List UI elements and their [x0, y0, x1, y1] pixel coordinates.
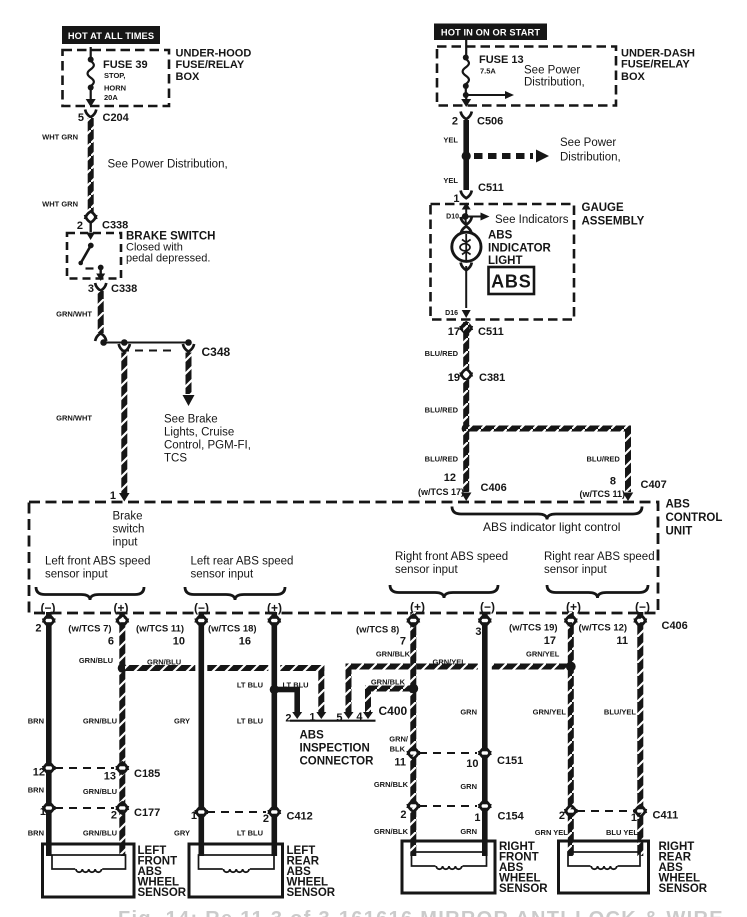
svg-text:11: 11 [616, 635, 628, 647]
svg-text:GRN YEL: GRN YEL [535, 828, 569, 837]
svg-text:See Power Distribution,: See Power Distribution, [108, 159, 228, 171]
svg-text:C406: C406 [662, 620, 688, 632]
svg-text:sensor input: sensor input [45, 569, 108, 581]
svg-text:(w/TCS 11): (w/TCS 11) [579, 489, 625, 499]
svg-text:CONTROL: CONTROL [666, 512, 723, 524]
svg-text:GRY: GRY [174, 829, 190, 838]
svg-text:C177: C177 [134, 807, 160, 819]
svg-text:C412: C412 [287, 810, 313, 822]
svg-text:2: 2 [77, 220, 83, 232]
svg-text:(−): (−) [635, 600, 650, 614]
svg-text:BLU/YEL: BLU/YEL [604, 708, 637, 717]
svg-text:11: 11 [394, 757, 406, 769]
svg-text:C338: C338 [111, 283, 137, 295]
svg-text:2: 2 [263, 813, 269, 825]
svg-text:(w/TCS 11): (w/TCS 11) [136, 623, 184, 634]
svg-text:Distribution,: Distribution, [524, 77, 585, 89]
svg-text:HORN: HORN [104, 84, 126, 93]
svg-text:Left rear ABS speed: Left rear ABS speed [191, 556, 294, 568]
svg-text:(w/TCS 8): (w/TCS 8) [356, 624, 399, 635]
svg-text:TCS: TCS [164, 453, 187, 465]
svg-text:Right front ABS speed: Right front ABS speed [395, 551, 508, 563]
svg-text:C406: C406 [481, 482, 507, 494]
svg-text:3: 3 [475, 626, 481, 638]
svg-text:BLU/RED: BLU/RED [587, 455, 621, 464]
svg-text:pedal depressed.: pedal depressed. [126, 253, 210, 265]
svg-text:(w/TCS 18): (w/TCS 18) [208, 623, 257, 634]
svg-text:6: 6 [108, 636, 114, 648]
svg-text:LT BLU: LT BLU [237, 681, 263, 690]
svg-text:FUSE/RELAY: FUSE/RELAY [176, 59, 245, 71]
svg-text:switch: switch [113, 524, 145, 536]
svg-text:C400: C400 [379, 704, 408, 718]
svg-text:GRN/BLU: GRN/BLU [83, 829, 117, 838]
svg-text:2: 2 [285, 713, 291, 725]
svg-text:GRN/WHT: GRN/WHT [56, 310, 92, 319]
svg-text:C204: C204 [103, 112, 130, 124]
svg-text:YEL: YEL [443, 176, 458, 185]
svg-text:WHT GRN: WHT GRN [42, 200, 78, 209]
svg-text:1: 1 [40, 806, 46, 818]
svg-text:ABS: ABS [491, 272, 531, 292]
svg-text:input: input [113, 537, 139, 549]
svg-text:ABS: ABS [300, 730, 325, 742]
svg-text:GRN/WHT: GRN/WHT [56, 414, 92, 423]
svg-text:GRN/: GRN/ [389, 734, 409, 743]
svg-text:BOX: BOX [621, 71, 646, 83]
svg-text:19: 19 [448, 372, 460, 384]
svg-text:16: 16 [239, 636, 251, 648]
svg-text:1: 1 [110, 490, 116, 502]
svg-text:GRN/YEL: GRN/YEL [433, 657, 467, 666]
svg-text:UNIT: UNIT [666, 525, 693, 537]
svg-text:20A: 20A [104, 93, 118, 102]
svg-text:WHT GRN: WHT GRN [42, 133, 78, 142]
svg-text:7: 7 [400, 635, 406, 647]
svg-text:GRN/BLK: GRN/BLK [374, 780, 409, 789]
svg-text:SENSOR: SENSOR [138, 887, 187, 899]
svg-text:YEL: YEL [443, 136, 458, 145]
svg-text:D10: D10 [446, 213, 459, 220]
svg-text:BOX: BOX [176, 71, 201, 83]
svg-text:Brake: Brake [113, 511, 143, 523]
svg-text:C511: C511 [478, 182, 504, 194]
svg-text:10: 10 [173, 636, 185, 648]
svg-text:GAUGE: GAUGE [582, 202, 625, 214]
svg-text:12: 12 [33, 766, 45, 778]
svg-text:ASSEMBLY: ASSEMBLY [582, 216, 645, 228]
svg-text:Fig. 14: Re 11 3 of 3-161616: Fig. 14: Re 11 3 of 3-161616 MIRROR ANTI… [118, 908, 724, 917]
svg-text:17: 17 [544, 635, 556, 647]
svg-text:See Power: See Power [560, 137, 616, 149]
svg-text:(w/TCS 7): (w/TCS 7) [68, 623, 111, 634]
svg-text:2: 2 [559, 810, 565, 822]
svg-text:BRN: BRN [28, 829, 44, 838]
svg-text:LT BLU: LT BLU [283, 681, 309, 690]
svg-text:BLU YEL: BLU YEL [606, 828, 638, 837]
svg-text:2: 2 [35, 622, 41, 634]
svg-text:ABS: ABS [666, 498, 691, 510]
svg-text:5: 5 [336, 712, 342, 724]
svg-text:BLU/RED: BLU/RED [425, 455, 459, 464]
svg-text:INSPECTION: INSPECTION [300, 743, 370, 755]
svg-text:STOP,: STOP, [104, 71, 125, 80]
svg-text:LT BLU: LT BLU [237, 829, 263, 838]
svg-text:17: 17 [448, 326, 460, 338]
svg-text:GRN/BLU: GRN/BLU [83, 787, 117, 796]
svg-text:Distribution,: Distribution, [560, 151, 621, 163]
svg-text:BLK: BLK [390, 745, 406, 754]
svg-text:sensor input: sensor input [395, 564, 458, 576]
svg-text:GRN/YEL: GRN/YEL [526, 649, 560, 658]
svg-text:3: 3 [88, 283, 94, 295]
svg-text:2: 2 [400, 809, 406, 821]
svg-text:sensor input: sensor input [544, 564, 607, 576]
svg-text:BLU/RED: BLU/RED [425, 405, 459, 414]
svg-text:(w/TCS 19): (w/TCS 19) [509, 622, 558, 633]
svg-text:13: 13 [104, 770, 116, 782]
svg-text:HOT AT ALL TIMES: HOT AT ALL TIMES [68, 31, 154, 41]
svg-text:10: 10 [466, 758, 478, 770]
svg-text:GRN: GRN [460, 827, 477, 836]
svg-text:C411: C411 [653, 809, 679, 821]
svg-text:C381: C381 [479, 372, 505, 384]
svg-text:SENSOR: SENSOR [287, 887, 336, 899]
svg-text:GRN: GRN [460, 782, 477, 791]
svg-text:ABS: ABS [488, 230, 513, 242]
svg-text:8: 8 [610, 476, 616, 488]
svg-text:BRN: BRN [28, 785, 44, 794]
svg-text:See Power: See Power [524, 65, 580, 77]
svg-text:HOT IN ON OR START: HOT IN ON OR START [441, 28, 540, 38]
svg-text:D16: D16 [445, 310, 458, 317]
svg-text:C185: C185 [134, 768, 160, 780]
svg-text:C511: C511 [478, 326, 504, 338]
svg-text:7.5A: 7.5A [480, 66, 496, 75]
svg-text:5: 5 [78, 112, 84, 124]
svg-text:1: 1 [474, 812, 480, 824]
svg-text:1: 1 [631, 812, 637, 824]
svg-text:See Brake: See Brake [164, 414, 218, 426]
svg-text:LIGHT: LIGHT [488, 255, 523, 267]
svg-text:(w/TCS 17): (w/TCS 17) [418, 487, 464, 497]
svg-text:UNDER-HOOD: UNDER-HOOD [176, 48, 252, 60]
svg-text:BRN: BRN [28, 717, 44, 726]
svg-text:(w/TCS 12): (w/TCS 12) [579, 622, 628, 633]
svg-text:BLU/RED: BLU/RED [425, 349, 459, 358]
svg-text:2: 2 [111, 810, 117, 822]
svg-text:C151: C151 [497, 755, 523, 767]
svg-text:Right rear ABS speed: Right rear ABS speed [544, 551, 655, 563]
svg-text:SENSOR: SENSOR [499, 883, 548, 895]
svg-text:GRN/BLK: GRN/BLK [374, 827, 409, 836]
svg-text:Lights, Cruise: Lights, Cruise [164, 427, 234, 439]
svg-text:GRN/BLK: GRN/BLK [376, 649, 411, 658]
svg-text:GRY: GRY [174, 716, 190, 725]
svg-text:CONNECTOR: CONNECTOR [300, 756, 375, 768]
svg-text:C407: C407 [641, 479, 667, 491]
svg-text:12: 12 [444, 472, 456, 484]
svg-text:C154: C154 [498, 810, 525, 822]
svg-text:C348: C348 [202, 345, 231, 359]
svg-text:2: 2 [452, 115, 458, 127]
svg-text:Control, PGM-FI,: Control, PGM-FI, [164, 440, 251, 452]
svg-text:GRN/BLU: GRN/BLU [79, 656, 113, 665]
svg-text:FUSE 13: FUSE 13 [479, 54, 524, 66]
svg-text:LT BLU: LT BLU [237, 716, 263, 725]
svg-text:SENSOR: SENSOR [659, 883, 708, 895]
svg-text:(+): (+) [566, 600, 581, 614]
svg-text:GRN: GRN [460, 708, 477, 717]
svg-text:GRN/YEL: GRN/YEL [533, 708, 567, 717]
svg-text:GRN/BLU: GRN/BLU [83, 717, 117, 726]
svg-text:See Indicators: See Indicators [495, 214, 569, 226]
svg-text:FUSE/RELAY: FUSE/RELAY [621, 58, 690, 70]
svg-text:1: 1 [191, 810, 197, 822]
svg-text:(+): (+) [410, 600, 425, 614]
svg-text:(−): (−) [480, 600, 495, 614]
svg-text:FUSE 39: FUSE 39 [103, 59, 148, 71]
svg-text:C338: C338 [102, 220, 128, 232]
svg-text:INDICATOR: INDICATOR [488, 242, 552, 254]
svg-text:ABS indicator light control: ABS indicator light control [483, 520, 620, 534]
svg-text:4: 4 [356, 711, 363, 723]
svg-text:sensor input: sensor input [191, 569, 254, 581]
svg-text:Left front ABS speed: Left front ABS speed [45, 556, 151, 568]
svg-text:1: 1 [309, 712, 315, 724]
svg-text:GRN/BLU: GRN/BLU [147, 657, 181, 666]
svg-text:C506: C506 [477, 115, 503, 127]
svg-text:GRN/BLK: GRN/BLK [371, 677, 406, 686]
